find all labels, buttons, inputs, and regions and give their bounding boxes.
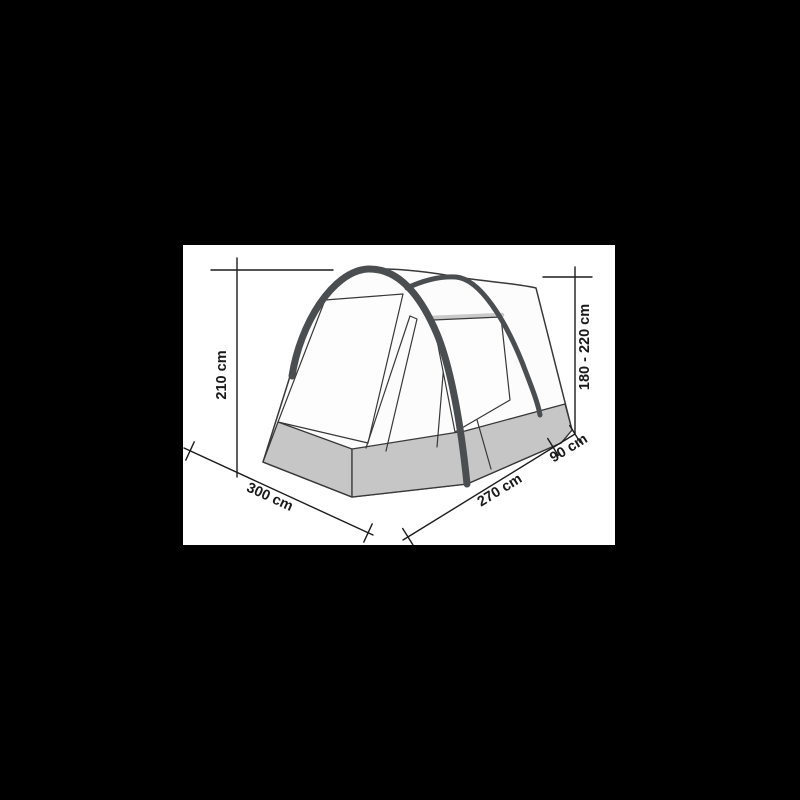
tent-diagram-svg: 210 cm 180 - 220 cm 300 cm 270 cm 90 cm	[183, 245, 615, 545]
dimension-tick-width-end	[364, 524, 372, 542]
diagram-panel: 210 cm 180 - 220 cm 300 cm 270 cm 90 cm	[183, 245, 615, 545]
label-width: 300 cm	[244, 480, 295, 515]
label-front-height: 210 cm	[214, 350, 230, 399]
dimension-tick-depth-start	[403, 529, 414, 546]
label-rear-height-range: 180 - 220 cm	[577, 304, 593, 390]
tent-drawing	[263, 269, 572, 497]
dimension-tick-width-start	[186, 442, 194, 460]
screenshot-root: { "diagram": { "name": "tent-dimension-d…	[0, 0, 800, 800]
